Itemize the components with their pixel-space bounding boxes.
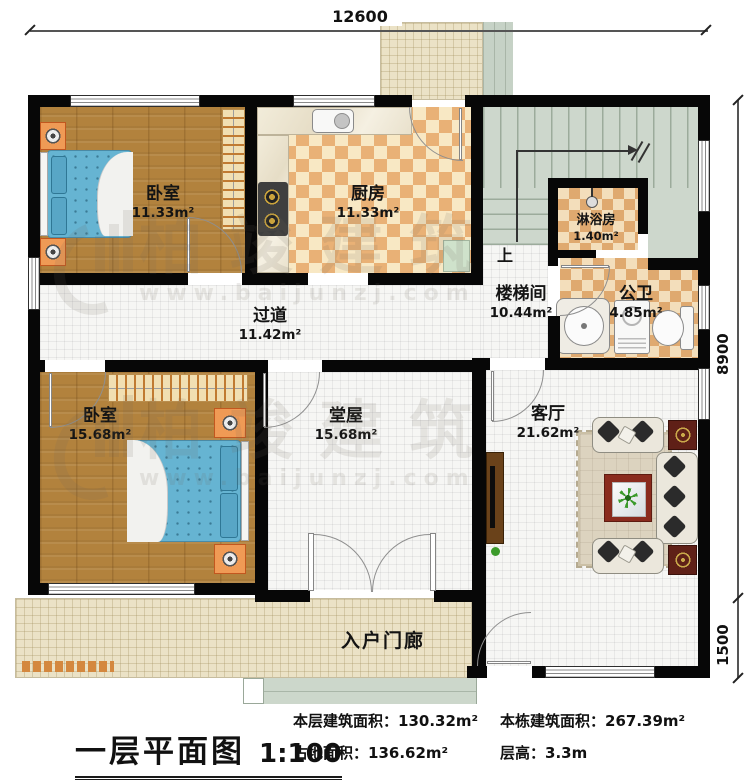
wardrobe [108, 374, 248, 402]
wall [467, 666, 487, 678]
side-table [668, 545, 697, 575]
stair-arrow-line [516, 150, 628, 152]
pillow [51, 156, 67, 194]
wall [532, 666, 545, 678]
nightstand [40, 122, 66, 150]
room-area: 10.44m² [490, 305, 553, 322]
kitchen-floor-mat [443, 240, 470, 272]
front-steps [263, 678, 477, 704]
nightstand [214, 544, 246, 574]
room-name: 淋浴房 [573, 213, 618, 229]
wall [322, 360, 486, 372]
rear-terrace [380, 22, 483, 100]
stat-label: 本栋建筑面积： [500, 712, 605, 730]
bed-headboard [40, 152, 48, 236]
plan-title-text: 一层平面图 [75, 726, 245, 771]
door-leaf [561, 265, 609, 268]
room-name: 卧室 [69, 406, 132, 427]
room-label-stairwell: 楼梯间 10.44m² [490, 284, 553, 322]
wall [548, 178, 648, 188]
room-label-hall: 堂屋 15.68m² [315, 406, 378, 444]
bed-headboard [241, 441, 249, 541]
wall [472, 360, 486, 666]
wall [200, 95, 293, 107]
plant-icon [618, 488, 638, 508]
wall [255, 590, 310, 602]
wall [245, 107, 257, 273]
window [293, 95, 375, 107]
stat-value: 267.39m² [605, 712, 685, 730]
room-area: 11.33m² [337, 205, 400, 222]
stat-value: 130.32m² [398, 712, 478, 730]
door-leaf [491, 371, 494, 421]
bathroom-sink-drain [581, 323, 587, 329]
room-name: 客厅 [517, 404, 580, 425]
wall [28, 360, 45, 372]
stat-floor-area: 本层建筑面积：130.32m² [293, 710, 478, 731]
window [698, 368, 710, 420]
stat-floor-height: 层高：3.3m [500, 742, 587, 763]
room-area: 11.42m² [239, 327, 302, 344]
stat-label: 本层建筑面积： [293, 712, 398, 730]
stat-label: 层高： [500, 744, 545, 762]
decor-ring-icon [673, 425, 693, 445]
wall [465, 95, 710, 107]
room-area: 21.62m² [517, 425, 580, 442]
wall [545, 358, 710, 370]
stove-burner [263, 188, 281, 206]
room-label-corridor: 过道 11.42m² [239, 306, 302, 344]
top-dimension-value: 12600 [318, 7, 402, 26]
wall [375, 95, 412, 107]
wardrobe [222, 109, 245, 230]
pillow [220, 493, 238, 538]
plant-small-icon [491, 547, 500, 556]
door-leaf [459, 108, 462, 160]
room-label-bedroom1: 卧室 11.33m² [132, 184, 195, 222]
room-label-bathroom: 公卫 4.85m² [609, 284, 662, 322]
pillow [51, 197, 67, 235]
wall [648, 258, 710, 270]
wall [698, 95, 710, 140]
room-area: 4.85m² [609, 305, 662, 322]
lamp-icon [44, 243, 62, 261]
room-name: 厨房 [337, 184, 400, 205]
porch-tile-accents [22, 661, 114, 672]
tv-screen [490, 466, 495, 528]
window [545, 666, 655, 678]
door-leaf [487, 661, 531, 664]
top-dimension-line [30, 30, 708, 32]
room-name: 楼梯间 [490, 284, 553, 305]
lamp-icon [221, 414, 239, 432]
double-door-leaf [430, 533, 436, 591]
room-label-shower: 淋浴房 1.40m² [573, 213, 618, 244]
stove-burner [263, 212, 281, 230]
kitchen-sink-basin [334, 113, 350, 129]
wall [28, 310, 40, 583]
room-name: 入户门廊 [341, 630, 425, 654]
room-label-living: 客厅 21.62m² [517, 404, 580, 442]
wall [655, 666, 710, 678]
room-area: 15.68m² [315, 427, 378, 444]
door-leaf [187, 218, 190, 272]
right-dimension-value-main: 8900 [714, 305, 732, 375]
room-name: 卧室 [132, 184, 195, 205]
floor-plan-canvas: 12600 8900 1500 [0, 0, 750, 780]
wall [40, 273, 188, 285]
wall [368, 273, 483, 285]
stair-arrow-line [516, 150, 518, 242]
decor-ring-icon [673, 550, 693, 570]
wall [471, 107, 483, 285]
window [48, 583, 195, 595]
window [28, 257, 40, 310]
wall [434, 590, 472, 602]
stair-landing [648, 188, 698, 258]
room-area: 15.68m² [69, 427, 132, 444]
stat-label: 占地面积： [293, 744, 368, 762]
door-leaf [49, 373, 52, 427]
wall [28, 583, 48, 595]
wall [638, 178, 648, 234]
window [698, 140, 710, 212]
right-dimension-value-porch: 1500 [714, 614, 732, 666]
wall [548, 250, 596, 258]
room-label-porch: 入户门廊 [341, 630, 425, 654]
stat-building-area: 本栋建筑面积：267.39m² [500, 710, 685, 731]
room-label-kitchen: 厨房 11.33m² [337, 184, 400, 222]
wall [105, 360, 262, 372]
lamp-icon [221, 550, 239, 568]
room-name: 堂屋 [315, 406, 378, 427]
washing-machine-panel [618, 338, 646, 350]
nightstand [214, 408, 246, 438]
wall [698, 212, 710, 285]
door-leaf [263, 373, 266, 427]
side-table [668, 420, 697, 450]
wall [472, 358, 490, 370]
wall [28, 95, 40, 257]
room-name: 公卫 [609, 284, 662, 305]
window [70, 95, 200, 107]
shower-head-stem [591, 188, 593, 197]
shower-head-icon [586, 196, 598, 208]
rear-steps [483, 22, 513, 100]
room-area: 1.40m² [573, 229, 618, 243]
stat-value: 3.3m [545, 744, 587, 762]
tv-cabinet [486, 452, 504, 544]
room-name: 过道 [239, 306, 302, 327]
window [698, 285, 710, 330]
stair-up-text: 上 [497, 246, 513, 266]
pillow [220, 446, 238, 491]
stat-site-area: 占地面积：136.62m² [293, 742, 448, 763]
stair-direction-label: 上 [497, 246, 513, 266]
stat-value: 136.62m² [368, 744, 448, 762]
right-dimension-line [737, 100, 739, 678]
wall [242, 273, 308, 285]
room-area: 11.33m² [132, 205, 195, 222]
lamp-icon [44, 127, 62, 145]
wall [548, 316, 560, 358]
room-label-bedroom2: 卧室 15.68m² [69, 406, 132, 444]
nightstand [40, 238, 66, 266]
wall [698, 420, 710, 678]
